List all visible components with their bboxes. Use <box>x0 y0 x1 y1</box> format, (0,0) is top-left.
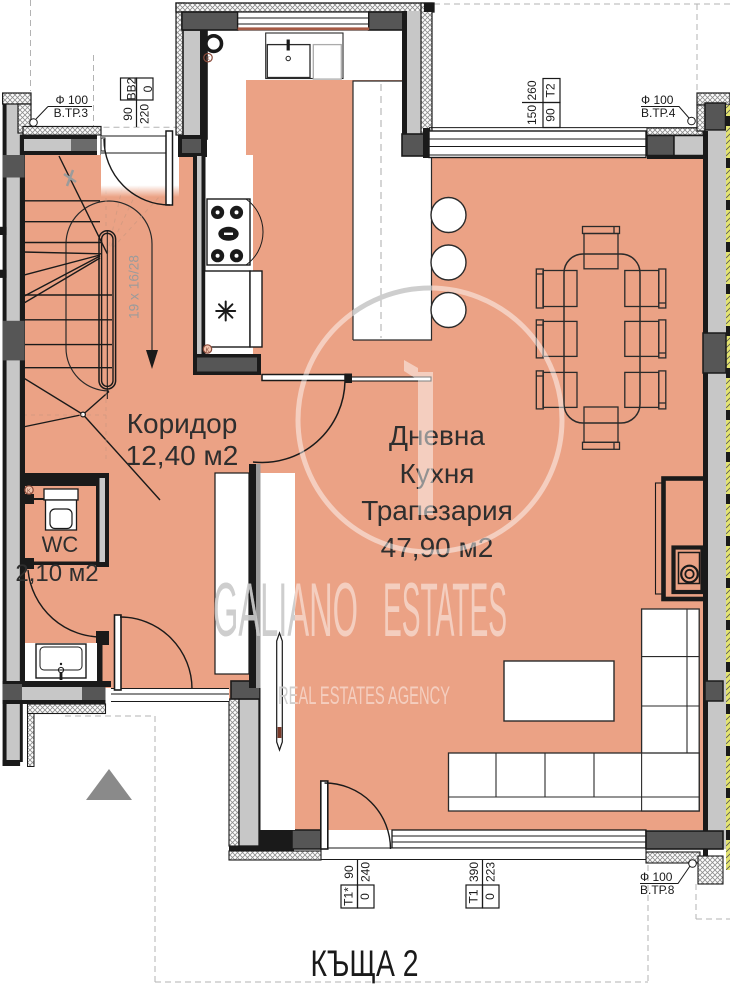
svg-text:Ф 100: Ф 100 <box>56 93 89 107</box>
svg-text:240: 240 <box>358 862 372 882</box>
svg-text:19 x 16/28: 19 x 16/28 <box>126 255 142 319</box>
svg-text:Т1: Т1 <box>467 889 481 903</box>
svg-text:В.ТР.8: В.ТР.8 <box>640 883 675 897</box>
svg-text:90: 90 <box>121 107 135 121</box>
svg-text:K: K <box>27 489 31 495</box>
svg-text:390: 390 <box>467 862 481 882</box>
svg-text:Т1*: Т1* <box>342 887 356 906</box>
svg-text:REAL ESTATES AGENCY: REAL ESTATES AGENCY <box>278 682 450 710</box>
svg-text:ВВ2: ВВ2 <box>125 77 139 100</box>
svg-text:150: 150 <box>525 105 539 125</box>
svg-text:12,40 м2: 12,40 м2 <box>126 440 239 471</box>
svg-text:K: K <box>206 57 210 63</box>
svg-text:Дневна: Дневна <box>389 420 485 451</box>
svg-text:2,10 м2: 2,10 м2 <box>15 560 98 587</box>
svg-text:90: 90 <box>342 865 356 879</box>
svg-text:K: K <box>205 348 209 354</box>
svg-text:0: 0 <box>483 893 497 900</box>
svg-text:Коридор: Коридор <box>127 408 238 439</box>
svg-text:260: 260 <box>525 80 539 100</box>
svg-text:Ф 100: Ф 100 <box>640 870 673 884</box>
svg-text:ESTATES: ESTATES <box>383 568 507 653</box>
svg-text:КЪЩА 2: КЪЩА 2 <box>311 943 419 984</box>
svg-text:220: 220 <box>137 104 151 124</box>
svg-text:В.ТР.4: В.ТР.4 <box>641 106 676 120</box>
svg-text:Ф 100: Ф 100 <box>641 93 674 107</box>
svg-text:223: 223 <box>483 862 497 882</box>
svg-text:0: 0 <box>141 85 155 92</box>
svg-text:Т2: Т2 <box>544 83 558 97</box>
svg-text:В.ТР.3: В.ТР.3 <box>54 106 89 120</box>
svg-text:90: 90 <box>544 108 558 122</box>
svg-text:Трапезария: Трапезария <box>361 495 513 526</box>
svg-text:Кухня: Кухня <box>400 458 475 489</box>
svg-text:WC: WC <box>42 532 79 557</box>
svg-text:0: 0 <box>358 893 372 900</box>
